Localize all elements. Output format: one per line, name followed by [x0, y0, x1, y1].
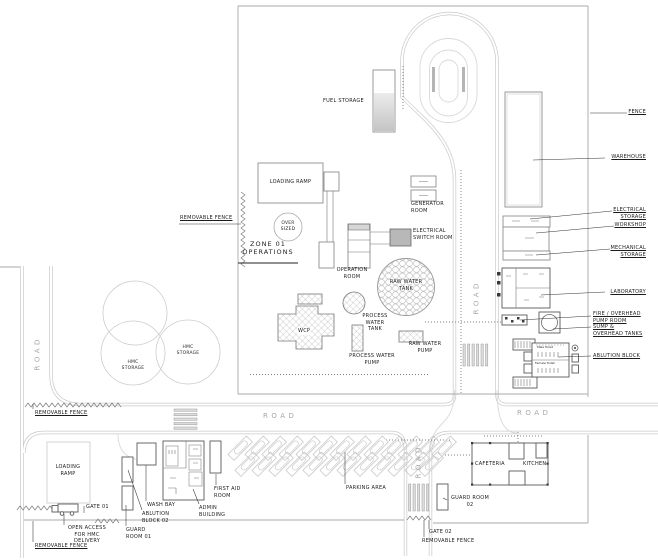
- electrical-switch-room-label: ELECTRICAL SWITCH ROOM: [413, 228, 453, 241]
- sump-overhead-tanks-label: SUMP & OVERHEAD TANKS: [593, 324, 642, 337]
- laboratory-label: LABORATORY: [610, 289, 646, 296]
- mechanical-storage-building: [503, 251, 550, 260]
- raw-water-pump-label: RAW WATER PUMP: [402, 341, 448, 354]
- hmc-storage-label-1: HMC STORAGE: [118, 360, 148, 371]
- speed-hump-mid-road: [174, 409, 197, 429]
- warehouse-label: WAREHOUSE: [611, 154, 646, 161]
- generator-room-label: GENERATOR ROOM: [411, 201, 444, 214]
- raw-water-tank-label: RAW WATER TANK: [384, 279, 428, 292]
- operation-room-building: [348, 224, 370, 268]
- hmc-storage-tank-1: [101, 321, 165, 385]
- process-water-tank-label: PROCESS WATER TANK: [360, 313, 390, 333]
- guard-room-01-label: GUARD ROOM 01: [126, 527, 151, 540]
- workshop-label: WORKSHOP: [614, 222, 646, 229]
- fence-label: FENCE: [628, 109, 646, 116]
- gate-02-label: GATE 02: [429, 529, 452, 536]
- removable-fence-label-mid: REMOVABLE FENCE: [35, 410, 87, 417]
- guard-room-01-building: [122, 486, 133, 510]
- removable-fence-zigzag-gate02: [407, 516, 431, 520]
- removable-fence-label-west: REMOVABLE FENCE: [180, 215, 232, 222]
- operation-room-label: OPERATION ROOM: [331, 267, 373, 280]
- female-toilet-label: Female Toilet: [535, 362, 555, 366]
- speed-hump-east-road: [463, 344, 488, 366]
- kitchen-label: KITCHEN: [523, 461, 546, 468]
- admin-building-label: ADMIN BUILDING: [199, 505, 225, 518]
- road-label-right: ROAD: [517, 409, 551, 418]
- zone01-buildings: [258, 70, 436, 351]
- ablution-block-02-label: ABLUTION BLOCK 02: [142, 511, 169, 524]
- open-access-label: OPEN ACCESS FOR HMC DELIVERY: [60, 525, 114, 545]
- wash-bay-label: WASH BAY: [147, 502, 175, 509]
- wcp-label: WCP: [297, 328, 311, 335]
- truck-icon: [52, 504, 78, 515]
- admin-building-shape: [163, 441, 204, 500]
- roads: [22, 14, 658, 559]
- loading-ramp-south-label: LOADING RAMP: [48, 464, 88, 477]
- first-aid-room-building: [210, 441, 221, 473]
- fuel-storage-label: FUEL STORAGE: [323, 98, 364, 105]
- road-label-south: ROAD: [414, 419, 423, 479]
- south-buildings: [47, 441, 221, 515]
- loading-ramp-zone01-label: LOADING RAMP: [259, 179, 322, 186]
- guard-room-02-label: GUARD ROOM 02: [447, 495, 493, 508]
- hmc-storage-label-2: HMC STORAGE: [173, 345, 203, 356]
- wash-bay-building: [137, 443, 156, 465]
- ablution-block-label: ABLUTION BLOCK: [593, 353, 640, 360]
- electrical-storage-label: ELECTRICAL STORAGE: [613, 207, 646, 220]
- sump-overhead-tank: [539, 312, 560, 333]
- parking-area-label: PARKING AREA: [346, 485, 386, 492]
- electrical-switch-room-building: [390, 229, 411, 246]
- removable-fence-label-gate02: REMOVABLE FENCE: [422, 538, 474, 545]
- zone-01-operations-label: ZONE 01 OPERATIONS: [238, 240, 298, 257]
- speed-hump-gate02: [409, 484, 429, 511]
- gate-01-label: GATE 01: [86, 504, 109, 511]
- road-label-east: ROAD: [472, 255, 481, 315]
- process-water-pump-label: PROCESS WATER PUMP: [344, 353, 400, 366]
- east-buildings: [497, 92, 579, 388]
- workshop-building: [503, 227, 549, 251]
- fire-overhead-pump-room-label: FIRE / OVERHEAD PUMP ROOM: [593, 311, 641, 324]
- male-toilet-label: Male Toilet: [537, 346, 553, 350]
- process-water-tank: [343, 292, 365, 314]
- turning-loop-ring: [420, 39, 477, 123]
- first-aid-room-label: FIRST AID ROOM: [214, 486, 241, 499]
- road-label-west: ROAD: [33, 311, 42, 371]
- site-plan: ROAD ROAD ROAD ROAD ROAD FENCE WAREHOUSE…: [0, 0, 658, 560]
- cafeteria-label: CAFETERIA: [475, 461, 505, 468]
- mechanical-storage-label: MECHANICAL STORAGE: [610, 245, 646, 258]
- ablution-block-02-building: [122, 457, 133, 482]
- warehouse-building: [505, 92, 542, 207]
- road-label-mid: ROAD: [263, 412, 297, 421]
- site-plan-drawing: [0, 0, 658, 560]
- over-sized-label: OVER SIZED: [274, 221, 302, 232]
